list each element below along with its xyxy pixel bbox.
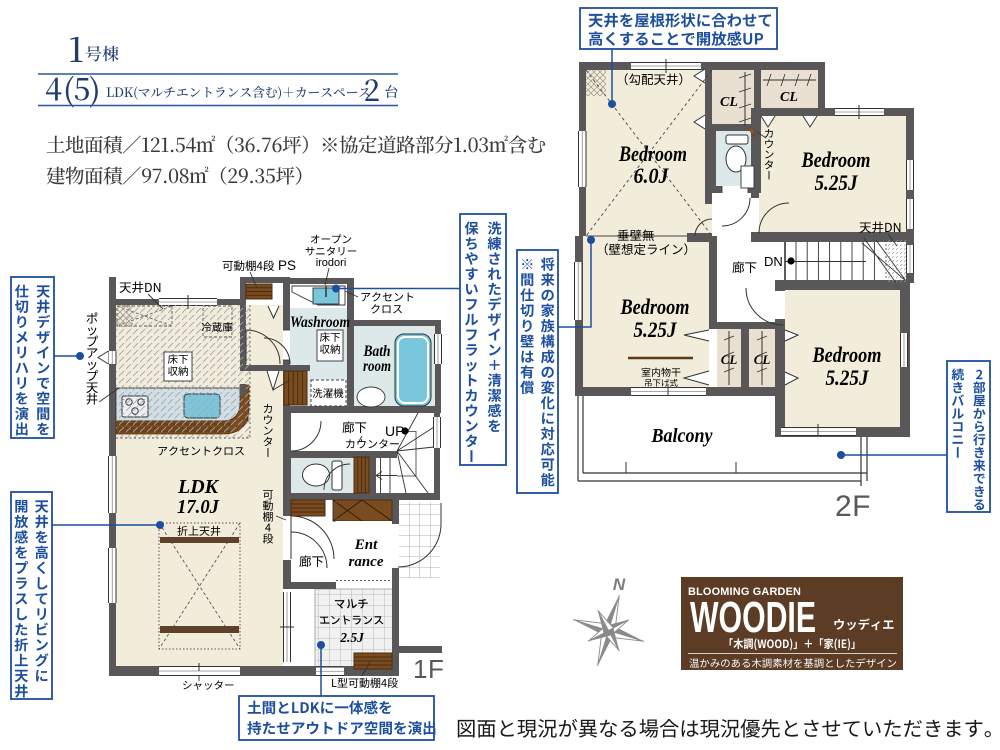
svg-text:CL: CL	[754, 352, 771, 367]
svg-text:5.25J: 5.25J	[815, 170, 859, 195]
svg-text:irodori: irodori	[316, 257, 347, 269]
svg-text:UP: UP	[385, 423, 404, 439]
svg-text:Bedroom: Bedroom	[620, 294, 690, 319]
svg-text:5.25J: 5.25J	[634, 317, 678, 342]
svg-text:Bedroom: Bedroom	[812, 342, 882, 367]
svg-text:2.5J: 2.5J	[339, 630, 365, 645]
svg-text:Balcony: Balcony	[651, 425, 713, 447]
svg-text:5.25J: 5.25J	[826, 365, 870, 390]
svg-text:WOODIE: WOODIE	[690, 593, 816, 642]
svg-text:6.0J: 6.0J	[634, 163, 670, 188]
svg-text:CL: CL	[780, 90, 798, 105]
svg-text:LDK: LDK	[177, 476, 220, 498]
svg-text:room: room	[363, 358, 391, 375]
svg-text:CL: CL	[720, 95, 738, 110]
svg-text:CL: CL	[721, 352, 738, 367]
svg-text:rance: rance	[349, 554, 384, 570]
svg-text:Bedroom: Bedroom	[801, 147, 871, 172]
svg-text:17.0J: 17.0J	[177, 496, 220, 518]
svg-text:1F: 1F	[413, 654, 444, 684]
svg-text:Ent: Ent	[354, 537, 378, 553]
svg-text:PS: PS	[278, 258, 296, 273]
svg-text:Washroom: Washroom	[290, 314, 350, 331]
svg-text:2F: 2F	[835, 490, 871, 523]
svg-text:N: N	[613, 575, 626, 594]
svg-text:DN: DN	[764, 254, 783, 269]
